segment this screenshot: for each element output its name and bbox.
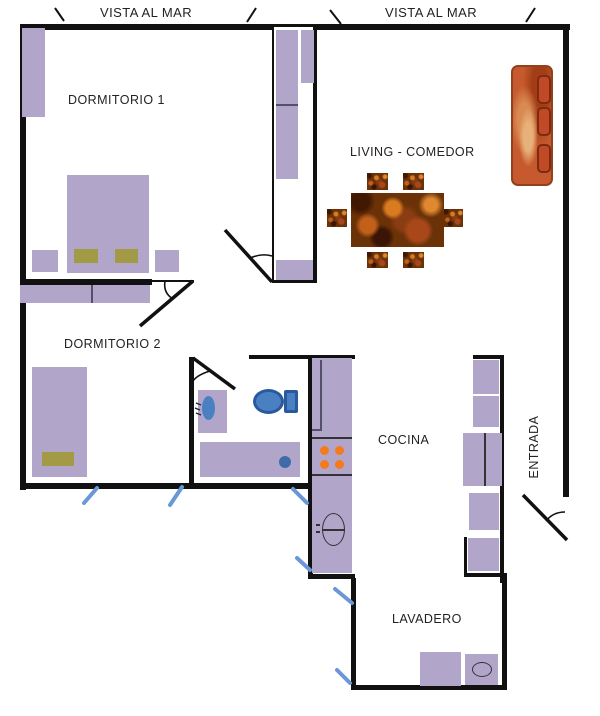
door-swing-arc xyxy=(193,371,210,381)
sofa-cushion xyxy=(537,107,551,136)
door-leaf xyxy=(193,358,235,389)
faucet-dot xyxy=(316,531,320,533)
kitchen-sink-divider xyxy=(322,529,345,531)
sofa-cushion xyxy=(537,144,551,173)
cabinet xyxy=(473,360,499,394)
chair xyxy=(367,252,388,268)
door-swing-arc xyxy=(165,281,173,299)
label-vista-al-mar-right: VISTA AL MAR xyxy=(385,5,477,20)
chair xyxy=(403,173,424,190)
wall xyxy=(502,573,507,690)
wall xyxy=(189,357,194,489)
window-mark xyxy=(330,10,341,24)
cabinet xyxy=(463,433,502,486)
wall xyxy=(249,355,313,359)
label-dormitorio-2: DORMITORIO 2 xyxy=(64,337,161,351)
closet-divider xyxy=(276,104,298,106)
pillow xyxy=(115,249,138,263)
floor-plan: VISTA AL MAR VISTA AL MAR DORMITORIO 1 L… xyxy=(0,0,600,716)
wall xyxy=(464,537,467,577)
nightstand xyxy=(32,250,58,272)
vent-mark xyxy=(170,487,182,505)
wall xyxy=(351,578,356,690)
door-leaf xyxy=(225,230,272,282)
bathtub-drain xyxy=(279,456,291,468)
stove-edge xyxy=(312,437,352,439)
vent-mark xyxy=(84,488,97,503)
wall xyxy=(308,574,355,579)
door-swing-arc xyxy=(546,512,565,521)
door-swing-arc xyxy=(250,255,272,258)
label-dormitorio-1: DORMITORIO 1 xyxy=(68,93,165,107)
window-mark xyxy=(247,8,256,22)
closet-shelf xyxy=(301,30,314,83)
stove-edge xyxy=(312,474,352,476)
stove-burner xyxy=(320,460,329,469)
chair xyxy=(444,209,463,227)
wall xyxy=(20,483,312,489)
cabinet-divider xyxy=(484,433,486,486)
cabinet xyxy=(468,538,499,571)
pillow xyxy=(42,452,74,466)
vent-mark xyxy=(293,489,307,503)
dresser-divider xyxy=(91,285,93,303)
window-mark xyxy=(526,8,535,22)
label-cocina: COCINA xyxy=(378,433,429,447)
wall xyxy=(563,24,569,497)
counter-edge xyxy=(312,429,322,431)
washing-machine xyxy=(420,652,461,686)
bathroom-sink-basin xyxy=(202,396,215,420)
stove-burner xyxy=(335,460,344,469)
nightstand xyxy=(155,250,179,272)
label-entrada: ENTRADA xyxy=(527,413,541,481)
label-vista-al-mar-left: VISTA AL MAR xyxy=(100,5,192,20)
cabinet xyxy=(473,396,499,427)
label-lavadero: LAVADERO xyxy=(392,612,462,626)
closet-shelf xyxy=(276,260,313,280)
wardrobe xyxy=(22,28,45,117)
toilet-tank xyxy=(284,390,298,413)
stove-burner xyxy=(320,446,329,455)
counter-edge xyxy=(320,360,322,430)
window-mark xyxy=(55,8,64,21)
door-leaf xyxy=(523,495,567,540)
faucet-dot xyxy=(316,524,320,526)
cabinet xyxy=(469,493,499,530)
dresser xyxy=(20,285,150,303)
sofa-cushion xyxy=(537,75,551,104)
wall xyxy=(464,573,507,577)
laundry-tub-basin xyxy=(472,662,492,677)
chair xyxy=(367,173,388,190)
chair xyxy=(403,252,424,268)
pillow xyxy=(74,249,98,263)
toilet-bowl xyxy=(253,389,284,414)
vent-mark xyxy=(337,670,350,683)
dining-table xyxy=(351,193,444,247)
label-living-comedor: LIVING - COMEDOR xyxy=(350,145,475,159)
vent-mark xyxy=(335,589,352,603)
stove-burner xyxy=(335,446,344,455)
wall xyxy=(473,355,504,359)
chair xyxy=(327,209,347,227)
